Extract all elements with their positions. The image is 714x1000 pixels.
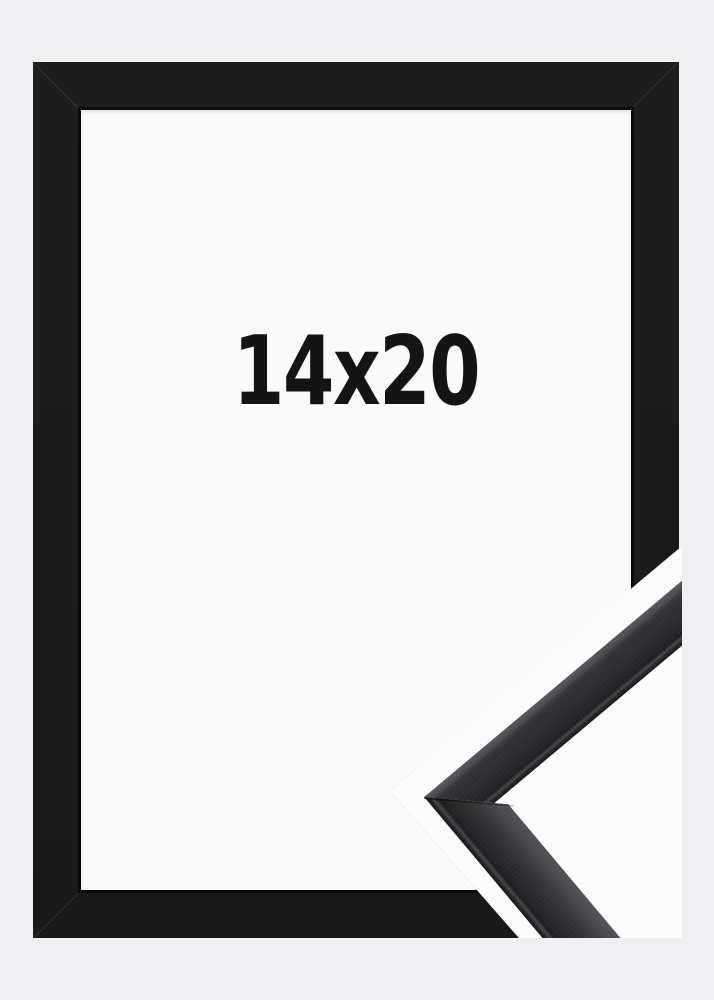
frame-miter-line-bottom-left <box>33 889 83 939</box>
product-image: 14x20 <box>0 0 714 1000</box>
frame-miter-line-top-right <box>629 61 679 111</box>
size-label: 14x20 <box>142 325 571 420</box>
frame-miter-line-top-left <box>32 62 82 112</box>
